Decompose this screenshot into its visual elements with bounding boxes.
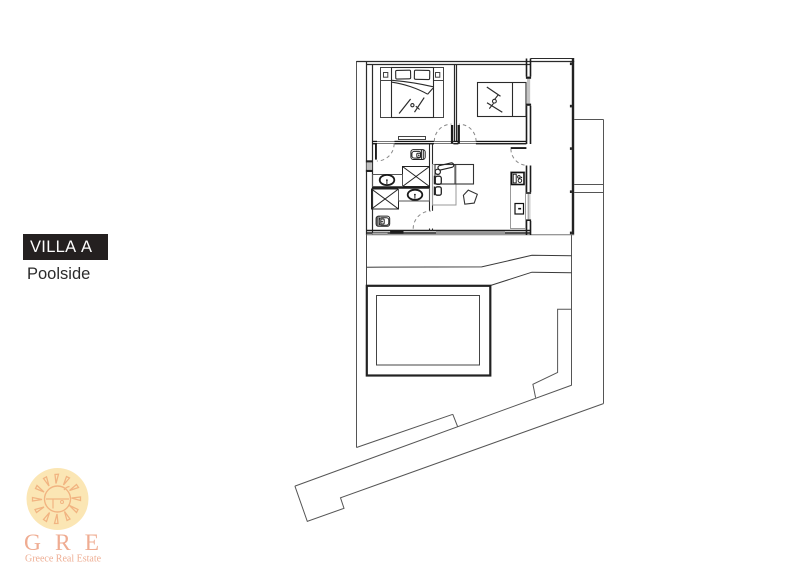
- svg-text:GRE: GRE: [24, 530, 113, 556]
- svg-text:Greece Real Estate: Greece Real Estate: [25, 554, 102, 565]
